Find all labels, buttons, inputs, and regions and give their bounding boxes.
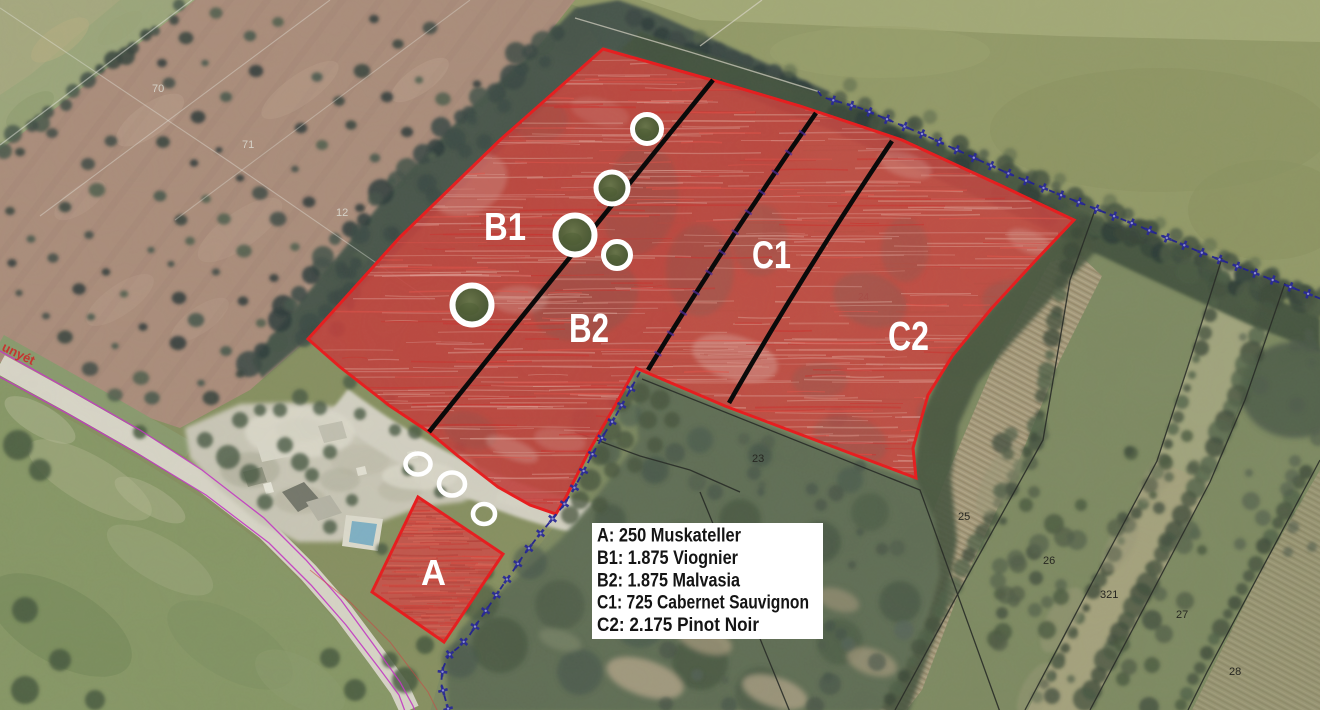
svg-text:C2: C2 bbox=[888, 313, 929, 359]
svg-text:A: 250 Muskateller: A: 250 Muskateller bbox=[597, 526, 742, 547]
svg-text:B2: B2 bbox=[569, 305, 609, 351]
svg-text:B2: 1.875 Malvasia: B2: 1.875 Malvasia bbox=[597, 570, 740, 591]
svg-text:A: A bbox=[421, 552, 446, 593]
svg-text:B1: 1.875 Viognier: B1: 1.875 Viognier bbox=[597, 548, 739, 569]
svg-text:C2: 2.175 Pinot Noir: C2: 2.175 Pinot Noir bbox=[597, 615, 760, 636]
svg-text:C1: C1 bbox=[752, 234, 791, 277]
svg-text:B1: B1 bbox=[484, 206, 526, 249]
svg-text:C1: 725 Cabernet Sauvignon: C1: 725 Cabernet Sauvignon bbox=[597, 593, 809, 614]
